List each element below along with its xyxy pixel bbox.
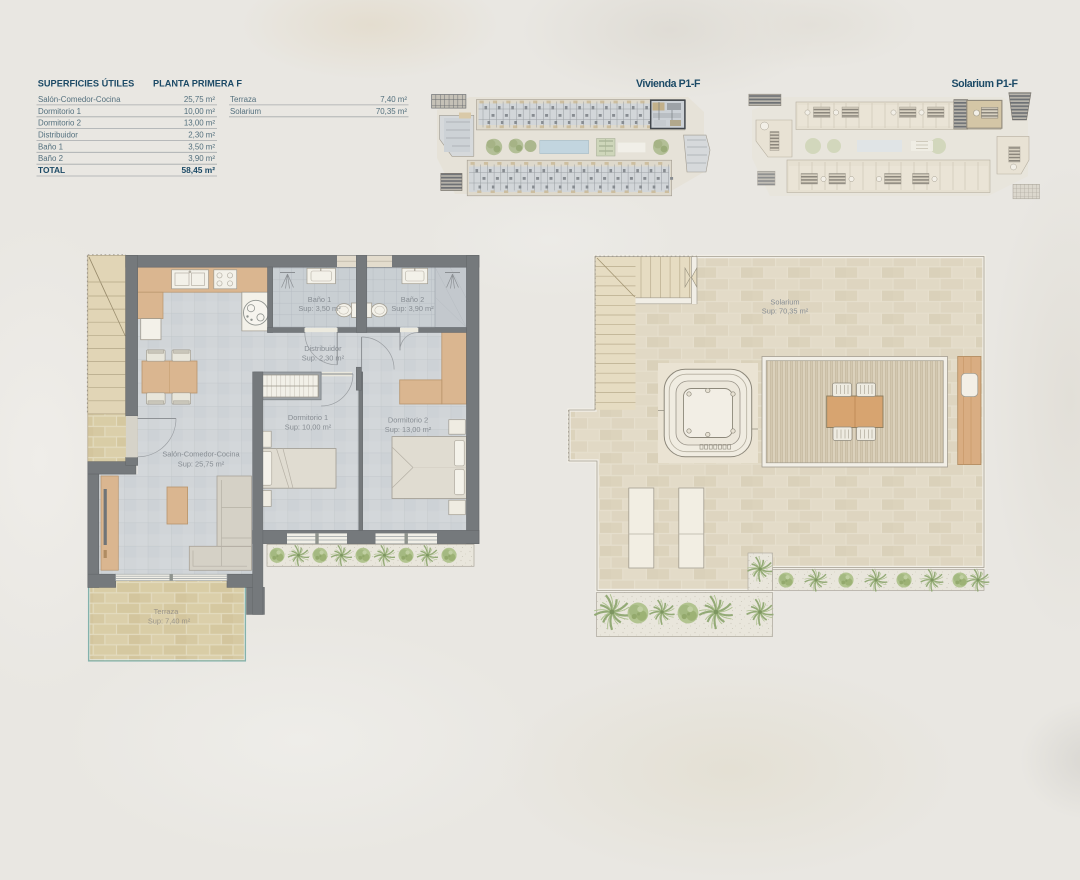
svg-text:Distribuidor: Distribuidor — [304, 344, 342, 353]
svg-text:Salón-Comedor-Cocina: Salón-Comedor-Cocina — [162, 449, 240, 458]
svg-text:Baño 1: Baño 1 — [38, 142, 63, 151]
svg-text:Solarium: Solarium — [230, 107, 262, 116]
svg-text:Sup: 10,00 m²: Sup: 10,00 m² — [285, 423, 332, 432]
svg-text:Dormitorio 1: Dormitorio 1 — [38, 107, 81, 116]
svg-text:Dormitorio 2: Dormitorio 2 — [388, 416, 428, 425]
svg-text:25,75 m²: 25,75 m² — [184, 95, 216, 104]
svg-text:Baño 2: Baño 2 — [401, 295, 424, 304]
svg-text:10,00 m²: 10,00 m² — [184, 107, 216, 116]
svg-text:Vivienda P1-F: Vivienda P1-F — [636, 78, 701, 90]
svg-text:Dormitorio 1: Dormitorio 1 — [288, 413, 328, 422]
svg-text:70,35 m²: 70,35 m² — [376, 107, 408, 116]
svg-text:Salón-Comedor-Cocina: Salón-Comedor-Cocina — [38, 95, 121, 104]
svg-text:Baño 2: Baño 2 — [38, 154, 63, 163]
svg-text:PLANTA PRIMERA F: PLANTA PRIMERA F — [153, 79, 242, 89]
svg-text:3,50 m²: 3,50 m² — [188, 142, 215, 151]
svg-text:58,45 m²: 58,45 m² — [181, 165, 215, 175]
svg-text:3,90 m²: 3,90 m² — [188, 154, 215, 163]
svg-text:Dormitorio 2: Dormitorio 2 — [38, 119, 81, 128]
svg-text:Sup: 13,00 m²: Sup: 13,00 m² — [385, 425, 432, 434]
svg-text:Solarium P1-F: Solarium P1-F — [951, 78, 1018, 90]
svg-text:Sup: 3,90 m²: Sup: 3,90 m² — [391, 304, 434, 313]
svg-text:7,40 m²: 7,40 m² — [380, 95, 407, 104]
svg-text:Sup: 7,40 m²: Sup: 7,40 m² — [148, 616, 191, 625]
svg-text:Solarium: Solarium — [770, 297, 799, 306]
svg-text:Sup: 2,30 m²: Sup: 2,30 m² — [302, 353, 345, 362]
svg-text:Baño 1: Baño 1 — [308, 295, 331, 304]
svg-text:Terraza: Terraza — [154, 607, 180, 616]
svg-text:13,00 m²: 13,00 m² — [184, 119, 216, 128]
svg-text:TOTAL: TOTAL — [38, 165, 65, 175]
svg-text:Sup: 3,50 m²: Sup: 3,50 m² — [298, 304, 341, 313]
svg-text:Sup: 25,75 m²: Sup: 25,75 m² — [178, 460, 225, 469]
svg-text:2,30 m²: 2,30 m² — [188, 131, 215, 140]
svg-text:Terraza: Terraza — [230, 95, 257, 104]
svg-text:Distribuidor: Distribuidor — [38, 131, 78, 140]
svg-text:Sup: 70,35 m²: Sup: 70,35 m² — [762, 307, 809, 316]
svg-text:SUPERFICIES ÚTILES: SUPERFICIES ÚTILES — [38, 78, 134, 89]
